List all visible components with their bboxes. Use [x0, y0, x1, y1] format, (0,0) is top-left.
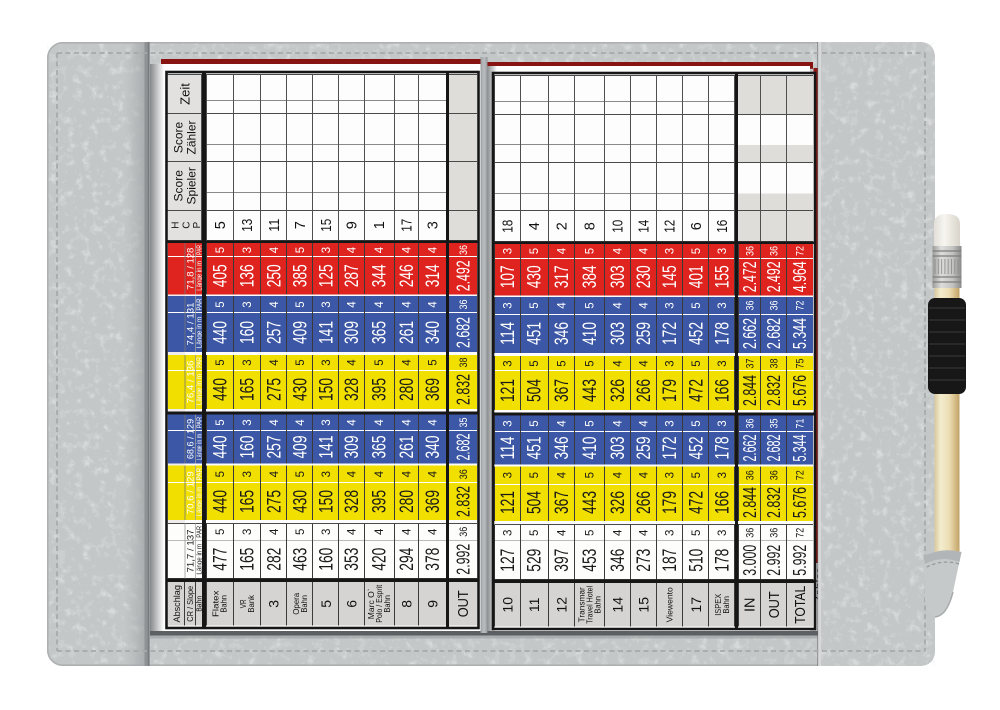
svg-text:250: 250	[264, 264, 285, 287]
svg-text:346: 346	[552, 437, 573, 460]
svg-text:3: 3	[717, 472, 729, 478]
svg-text:4: 4	[639, 302, 651, 309]
svg-text:2.832: 2.832	[764, 487, 784, 518]
svg-text:36: 36	[458, 245, 470, 255]
svg-text:141: 141	[317, 321, 338, 344]
svg-text:2.992: 2.992	[764, 545, 784, 576]
svg-text:472: 472	[687, 491, 708, 514]
svg-text:5: 5	[691, 248, 703, 254]
svg-text:4: 4	[347, 359, 359, 366]
svg-text:5: 5	[428, 359, 440, 365]
svg-text:282: 282	[264, 548, 285, 571]
svg-text:3: 3	[242, 247, 254, 253]
svg-text:385: 385	[291, 264, 312, 287]
svg-text:5: 5	[529, 530, 541, 536]
svg-text:36: 36	[458, 527, 470, 537]
svg-text:4: 4	[269, 470, 281, 477]
svg-text:4: 4	[428, 246, 440, 253]
svg-text:4: 4	[374, 246, 386, 253]
svg-text:7: 7	[293, 221, 309, 229]
svg-text:OUT: OUT	[456, 590, 472, 617]
svg-text:145: 145	[660, 265, 681, 288]
svg-text:2.472: 2.472	[740, 261, 760, 292]
svg-text:12: 12	[553, 597, 569, 613]
svg-text:4: 4	[347, 419, 359, 426]
svg-text:275: 275	[264, 490, 285, 513]
svg-text:4: 4	[347, 528, 359, 535]
svg-text:4: 4	[269, 246, 281, 253]
svg-text:287: 287	[342, 264, 363, 287]
svg-text:2.682: 2.682	[764, 435, 784, 462]
svg-text:3: 3	[665, 360, 677, 366]
svg-text:Abschlag: Abschlag	[172, 585, 183, 622]
svg-text:5: 5	[585, 302, 597, 308]
svg-text:3: 3	[665, 530, 677, 536]
svg-text:10: 10	[499, 597, 515, 613]
svg-text:8: 8	[398, 600, 414, 608]
svg-text:15: 15	[635, 597, 651, 613]
svg-text:Spieler: Spieler	[185, 167, 199, 204]
svg-text:259: 259	[634, 322, 655, 345]
svg-text:326: 326	[608, 491, 629, 514]
svg-text:2.682: 2.682	[453, 434, 473, 461]
svg-text:4: 4	[557, 302, 569, 309]
svg-text:178: 178	[713, 322, 734, 345]
svg-text:344: 344	[370, 264, 391, 287]
svg-text:409: 409	[291, 436, 312, 459]
svg-text:155: 155	[713, 265, 734, 288]
svg-text:346: 346	[608, 549, 629, 572]
svg-text:18: 18	[501, 220, 517, 233]
svg-text:5: 5	[529, 248, 541, 254]
svg-text:2.662: 2.662	[740, 318, 760, 349]
svg-text:Bahn: Bahn	[300, 595, 309, 613]
svg-text:261: 261	[397, 321, 418, 344]
svg-text:477: 477	[210, 548, 231, 571]
svg-text:346: 346	[552, 322, 573, 345]
svg-text:384: 384	[580, 265, 601, 288]
svg-text:303: 303	[608, 322, 629, 345]
svg-text:4: 4	[402, 246, 414, 253]
svg-text:367: 367	[552, 379, 573, 402]
svg-text:5: 5	[691, 360, 703, 366]
svg-text:3: 3	[242, 359, 254, 365]
svg-text:3: 3	[321, 419, 333, 425]
svg-text:36: 36	[769, 528, 781, 538]
svg-text:2.682: 2.682	[453, 317, 473, 348]
svg-text:TOTAL: TOTAL	[793, 586, 809, 624]
svg-text:165: 165	[238, 378, 259, 401]
svg-text:10: 10	[611, 220, 627, 233]
svg-text:314: 314	[423, 264, 444, 287]
svg-text:2.492: 2.492	[764, 261, 784, 292]
svg-text:3: 3	[717, 360, 729, 366]
svg-text:3: 3	[717, 530, 729, 536]
svg-text:136: 136	[238, 264, 259, 287]
svg-text:440: 440	[210, 436, 231, 459]
svg-text:3: 3	[503, 360, 515, 366]
svg-text:3: 3	[426, 221, 442, 229]
svg-text:5: 5	[295, 247, 307, 253]
svg-text:4: 4	[557, 247, 569, 254]
svg-text:420: 420	[370, 548, 391, 571]
svg-text:4: 4	[613, 471, 625, 478]
svg-text:160: 160	[238, 321, 259, 344]
svg-text:C: C	[181, 222, 192, 229]
svg-text:5.344: 5.344	[790, 318, 810, 349]
svg-text:121: 121	[498, 379, 519, 402]
svg-text:6: 6	[689, 222, 705, 230]
svg-text:H: H	[171, 222, 182, 229]
svg-text:2.832: 2.832	[764, 375, 784, 406]
svg-text:5: 5	[215, 247, 227, 253]
svg-text:452: 452	[687, 437, 708, 460]
svg-text:150: 150	[317, 378, 338, 401]
svg-text:5: 5	[691, 472, 703, 478]
svg-text:16: 16	[715, 220, 731, 233]
svg-text:369: 369	[423, 378, 444, 401]
svg-text:11: 11	[526, 597, 542, 612]
svg-text:36: 36	[744, 246, 756, 256]
svg-text:72: 72	[795, 528, 807, 538]
svg-text:504: 504	[525, 491, 546, 514]
svg-text:9: 9	[345, 221, 361, 229]
svg-text:395: 395	[370, 490, 391, 513]
svg-text:1: 1	[372, 221, 388, 229]
svg-text:4: 4	[269, 528, 281, 535]
svg-text:275: 275	[264, 378, 285, 401]
svg-text:3: 3	[321, 359, 333, 365]
svg-text:5: 5	[318, 600, 334, 608]
svg-text:5.344: 5.344	[790, 435, 810, 462]
svg-text:OUT: OUT	[767, 591, 783, 618]
svg-text:179: 179	[660, 379, 681, 402]
svg-text:340: 340	[423, 436, 444, 459]
svg-text:410: 410	[580, 437, 601, 460]
svg-text:166: 166	[713, 379, 734, 402]
svg-text:3: 3	[503, 530, 515, 536]
svg-text:259: 259	[634, 437, 655, 460]
svg-text:2: 2	[555, 222, 571, 230]
svg-text:3.000: 3.000	[740, 545, 760, 576]
svg-text:107: 107	[498, 265, 519, 288]
svg-text:36: 36	[769, 301, 781, 311]
svg-text:5: 5	[529, 302, 541, 308]
svg-text:5: 5	[585, 420, 597, 426]
svg-text:4: 4	[347, 246, 359, 253]
svg-text:4: 4	[269, 359, 281, 366]
svg-text:37: 37	[744, 359, 756, 369]
svg-text:36: 36	[769, 246, 781, 256]
svg-text:5: 5	[529, 472, 541, 478]
svg-text:165: 165	[238, 548, 259, 571]
svg-text:4: 4	[347, 301, 359, 308]
svg-text:179: 179	[660, 491, 681, 514]
svg-text:141: 141	[317, 436, 338, 459]
svg-text:451: 451	[525, 437, 546, 460]
svg-text:5: 5	[215, 529, 227, 535]
svg-text:172: 172	[660, 437, 681, 460]
svg-text:303: 303	[608, 265, 629, 288]
svg-text:4: 4	[374, 470, 386, 477]
svg-text:4: 4	[428, 419, 440, 426]
svg-text:15: 15	[319, 219, 335, 232]
svg-text:17: 17	[688, 597, 704, 613]
svg-text:3: 3	[242, 301, 254, 307]
svg-text:6: 6	[343, 600, 359, 608]
svg-text:5: 5	[215, 301, 227, 307]
svg-text:504: 504	[525, 379, 546, 402]
svg-text:2.844: 2.844	[740, 375, 760, 406]
svg-text:4: 4	[639, 247, 651, 254]
svg-text:Score: Score	[172, 170, 186, 202]
svg-text:72: 72	[795, 470, 807, 480]
svg-text:5: 5	[215, 471, 227, 477]
svg-text:5: 5	[557, 360, 569, 366]
svg-text:3: 3	[665, 420, 677, 426]
svg-text:5: 5	[691, 420, 703, 426]
svg-text:160: 160	[238, 436, 259, 459]
svg-text:5: 5	[585, 248, 597, 254]
svg-text:294: 294	[397, 547, 418, 570]
svg-text:3: 3	[242, 471, 254, 477]
svg-text:Zeit: Zeit	[178, 83, 193, 105]
svg-text:3: 3	[665, 248, 677, 254]
svg-text:36: 36	[458, 300, 470, 310]
svg-text:309: 309	[342, 321, 363, 344]
svg-text:5: 5	[585, 472, 597, 478]
svg-text:114: 114	[498, 436, 519, 459]
svg-text:5: 5	[215, 419, 227, 425]
svg-text:4: 4	[374, 301, 386, 308]
svg-text:246: 246	[397, 264, 418, 287]
svg-text:2.844: 2.844	[740, 487, 760, 518]
svg-text:453: 453	[580, 549, 601, 572]
svg-text:36: 36	[744, 419, 756, 429]
svg-text:4: 4	[639, 420, 651, 427]
svg-text:410: 410	[580, 322, 601, 345]
svg-text:401: 401	[687, 265, 708, 288]
svg-text:4: 4	[613, 247, 625, 254]
svg-text:4: 4	[374, 528, 386, 535]
svg-text:11: 11	[267, 219, 283, 232]
svg-text:472: 472	[687, 379, 708, 402]
svg-text:125: 125	[317, 264, 338, 287]
svg-text:4: 4	[402, 301, 414, 308]
svg-text:4.964: 4.964	[790, 261, 810, 292]
svg-text:Bahn: Bahn	[383, 595, 392, 613]
svg-text:257: 257	[264, 321, 285, 344]
svg-text:230: 230	[634, 265, 655, 288]
svg-text:2.832: 2.832	[453, 486, 473, 517]
svg-text:4: 4	[428, 301, 440, 308]
svg-text:17: 17	[400, 219, 416, 232]
svg-text:Bank: Bank	[247, 594, 256, 612]
svg-text:178: 178	[713, 437, 734, 460]
svg-text:5: 5	[585, 530, 597, 536]
svg-text:430: 430	[291, 378, 312, 401]
svg-text:405: 405	[210, 264, 231, 287]
svg-text:340: 340	[423, 321, 444, 344]
svg-text:5.676: 5.676	[790, 487, 810, 518]
svg-text:2.682: 2.682	[764, 318, 784, 349]
svg-text:3: 3	[503, 420, 515, 426]
svg-text:5: 5	[691, 530, 703, 536]
svg-text:71: 71	[795, 419, 807, 429]
svg-text:309: 309	[342, 436, 363, 459]
svg-text:261: 261	[397, 436, 418, 459]
svg-text:4: 4	[639, 471, 651, 478]
svg-text:353: 353	[342, 548, 363, 571]
svg-text:4: 4	[402, 419, 414, 426]
svg-text:266: 266	[634, 491, 655, 514]
svg-text:5: 5	[529, 420, 541, 426]
svg-text:266: 266	[634, 379, 655, 402]
svg-text:280: 280	[397, 490, 418, 513]
svg-text:303: 303	[608, 437, 629, 460]
svg-text:5: 5	[213, 221, 229, 229]
svg-text:5: 5	[374, 359, 386, 365]
svg-text:3: 3	[665, 472, 677, 478]
svg-text:3: 3	[503, 302, 515, 308]
svg-text:440: 440	[210, 321, 231, 344]
svg-text:397: 397	[552, 549, 573, 572]
svg-text:430: 430	[525, 265, 546, 288]
svg-text:12: 12	[663, 220, 679, 233]
svg-text:36: 36	[458, 469, 470, 479]
svg-text:5: 5	[295, 359, 307, 365]
svg-text:365: 365	[370, 321, 391, 344]
svg-text:36: 36	[744, 470, 756, 480]
svg-text:2.992: 2.992	[453, 544, 473, 575]
svg-text:4: 4	[428, 528, 440, 535]
svg-text:443: 443	[580, 491, 601, 514]
svg-text:Zähler: Zähler	[185, 120, 199, 154]
svg-text:4: 4	[613, 529, 625, 536]
svg-text:4: 4	[269, 301, 281, 308]
svg-text:4: 4	[557, 529, 569, 536]
svg-text:4: 4	[639, 529, 651, 536]
svg-text:38: 38	[458, 358, 470, 368]
svg-text:36: 36	[744, 301, 756, 311]
svg-text:395: 395	[370, 378, 391, 401]
svg-text:440: 440	[210, 378, 231, 401]
svg-text:160: 160	[317, 548, 338, 571]
svg-text:172: 172	[660, 322, 681, 345]
svg-text:4: 4	[639, 360, 651, 367]
svg-text:Viewento: Viewento	[665, 587, 674, 623]
svg-text:2.662: 2.662	[740, 435, 760, 462]
svg-text:3: 3	[717, 248, 729, 254]
svg-text:38: 38	[769, 359, 781, 369]
svg-text:127: 127	[498, 549, 519, 572]
svg-text:430: 430	[291, 490, 312, 513]
svg-text:3: 3	[321, 247, 333, 253]
svg-text:9: 9	[424, 600, 440, 608]
svg-text:165: 165	[238, 490, 259, 513]
svg-text:5: 5	[295, 301, 307, 307]
svg-text:328: 328	[342, 378, 363, 401]
svg-text:369: 369	[423, 490, 444, 513]
svg-text:409: 409	[291, 321, 312, 344]
svg-text:Bahn: Bahn	[220, 595, 229, 613]
svg-text:8: 8	[583, 222, 599, 230]
svg-text:4: 4	[269, 419, 281, 426]
svg-text:452: 452	[687, 322, 708, 345]
svg-text:2.492: 2.492	[453, 260, 473, 291]
svg-text:273: 273	[634, 549, 655, 572]
svg-text:IN: IN	[743, 598, 759, 613]
svg-text:178: 178	[713, 549, 734, 572]
svg-text:3: 3	[321, 529, 333, 535]
svg-text:529: 529	[525, 549, 546, 572]
svg-text:440: 440	[210, 490, 231, 513]
svg-text:5: 5	[295, 471, 307, 477]
svg-text:3: 3	[242, 529, 254, 535]
svg-text:5: 5	[295, 529, 307, 535]
svg-text:35: 35	[458, 418, 470, 428]
svg-text:4: 4	[527, 222, 543, 230]
svg-text:3: 3	[717, 302, 729, 308]
svg-text:3: 3	[242, 419, 254, 425]
svg-text:5: 5	[585, 360, 597, 366]
svg-text:72: 72	[795, 246, 807, 256]
svg-text:367: 367	[552, 491, 573, 514]
svg-text:36: 36	[744, 528, 756, 538]
svg-text:4: 4	[374, 419, 386, 426]
svg-text:4: 4	[557, 420, 569, 427]
svg-text:4: 4	[613, 360, 625, 367]
svg-text:4: 4	[347, 470, 359, 477]
svg-text:14: 14	[609, 597, 625, 613]
svg-text:5.992: 5.992	[790, 545, 810, 576]
svg-text:443: 443	[580, 379, 601, 402]
svg-text:5.676: 5.676	[790, 375, 810, 406]
svg-text:14: 14	[637, 220, 653, 233]
svg-text:4: 4	[402, 470, 414, 477]
svg-text:4: 4	[402, 359, 414, 366]
svg-text:3: 3	[503, 248, 515, 254]
svg-text:Score: Score	[172, 122, 186, 154]
svg-text:326: 326	[608, 379, 629, 402]
svg-text:3: 3	[717, 420, 729, 426]
svg-text:121: 121	[498, 491, 519, 514]
svg-text:4: 4	[613, 420, 625, 427]
svg-text:3: 3	[665, 302, 677, 308]
svg-text:451: 451	[525, 322, 546, 345]
svg-text:2.832: 2.832	[453, 374, 473, 405]
svg-text:13: 13	[240, 219, 256, 232]
svg-text:510: 510	[687, 549, 708, 572]
svg-text:257: 257	[264, 436, 285, 459]
svg-text:4: 4	[557, 471, 569, 478]
svg-text:4: 4	[428, 470, 440, 477]
svg-text:3: 3	[266, 600, 282, 608]
svg-text:4: 4	[613, 302, 625, 309]
svg-text:75: 75	[795, 359, 807, 369]
svg-text:72: 72	[795, 301, 807, 311]
svg-text:114: 114	[498, 322, 519, 345]
svg-text:5: 5	[529, 360, 541, 366]
svg-text:280: 280	[397, 378, 418, 401]
svg-text:4: 4	[402, 528, 414, 535]
svg-text:150: 150	[317, 490, 338, 513]
svg-text:35: 35	[769, 419, 781, 429]
svg-text:166: 166	[713, 491, 734, 514]
svg-text:Bahn: Bahn	[593, 596, 602, 614]
svg-text:3: 3	[321, 301, 333, 307]
svg-text:187: 187	[660, 549, 681, 572]
